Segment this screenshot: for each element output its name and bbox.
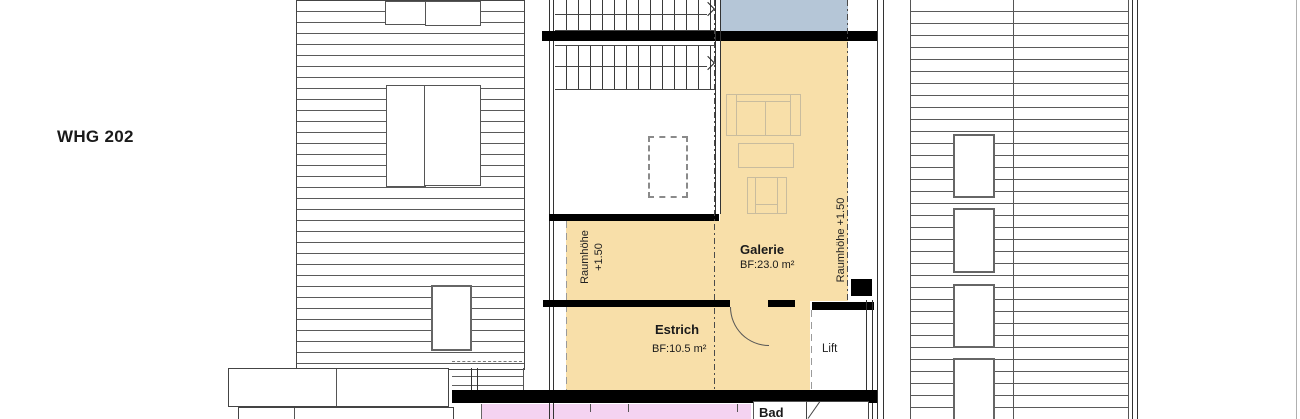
drawing-border-line xyxy=(1296,0,1297,419)
room-height-text: Raumhöhe xyxy=(578,217,592,297)
galerie-floor-lower xyxy=(566,221,848,301)
skylight-window xyxy=(385,1,427,25)
roof-hatch-extension xyxy=(452,368,524,390)
skylight-hatch xyxy=(425,1,481,26)
wall-stairwell-left xyxy=(549,0,554,419)
wall-room-bottom xyxy=(549,214,719,221)
wall-lift-top xyxy=(812,302,874,310)
armchair-armrest-line xyxy=(777,178,778,213)
roof-window xyxy=(953,284,995,348)
roof-panel-blue xyxy=(720,0,848,32)
wall-stub xyxy=(471,368,478,390)
wall-center-vertical xyxy=(715,0,721,214)
coffee-table xyxy=(738,143,794,168)
room-label-estrich: Estrich xyxy=(655,322,699,337)
armchair-armrest-line xyxy=(755,178,756,213)
stair-treads-upper xyxy=(555,0,715,31)
room-area-galerie: BF:23.0 m² xyxy=(740,259,794,271)
lift-edge-dashed xyxy=(811,310,812,390)
wall-estrich-top xyxy=(543,300,730,307)
lift-label: Lift xyxy=(822,343,837,355)
roof-hatch-right-inner xyxy=(910,0,1014,419)
floor-opening-dashed-rect xyxy=(648,136,688,198)
wall-building-right xyxy=(877,0,884,419)
bath-floor-pink xyxy=(481,404,751,419)
bad-room: Bad xyxy=(753,401,807,419)
room-label-galerie: Galerie xyxy=(740,242,784,257)
stair-run-line xyxy=(555,66,707,67)
wall-top-thick xyxy=(542,31,878,41)
eave-divider-line xyxy=(336,369,337,406)
roof-hatch-left xyxy=(296,0,525,370)
eave-divider-line xyxy=(294,408,295,419)
wall-tick xyxy=(590,404,591,412)
room-height-text: +1.50 xyxy=(592,217,606,297)
stair-diagonal-line xyxy=(808,401,821,419)
apartment-label: WHG 202 xyxy=(57,127,134,147)
roof-edge-right xyxy=(1132,0,1138,419)
roof-window xyxy=(431,285,472,351)
roof-window xyxy=(953,134,995,198)
wall-tick xyxy=(628,404,629,412)
stair-hatch-bottom xyxy=(806,401,869,419)
skylight-window xyxy=(386,85,426,187)
armchair xyxy=(747,177,787,214)
wall-tick xyxy=(737,404,738,412)
roof-window xyxy=(953,358,995,419)
roof-window xyxy=(953,208,995,273)
axis-dash-horizontal xyxy=(452,361,522,362)
wall-column xyxy=(851,279,872,296)
floor-plan-canvas: WHG 202 xyxy=(0,0,1300,419)
eave-strip-lower xyxy=(238,407,454,419)
sofa-cushion-divider xyxy=(765,101,766,135)
wall-estrich-top-segment xyxy=(768,300,795,307)
skylight-hatch xyxy=(424,85,481,186)
axis-line-vertical xyxy=(714,0,715,390)
room-area-estrich: BF:10.5 m² xyxy=(652,343,706,355)
roof-hatch-right-outer xyxy=(1013,0,1129,419)
armchair-seat-line xyxy=(755,204,778,205)
room-height-annotation-right: Raumhöhe +1.50 xyxy=(834,185,848,295)
stair-run-line xyxy=(555,14,707,15)
room-label-bad: Bad xyxy=(759,405,784,419)
sofa-back-line xyxy=(736,101,791,102)
room-height-annotation-left: Raumhöhe +1.50 xyxy=(578,217,606,297)
eave-strip-upper xyxy=(228,368,449,407)
stair-treads-lower xyxy=(555,45,715,90)
sofa xyxy=(726,94,801,136)
